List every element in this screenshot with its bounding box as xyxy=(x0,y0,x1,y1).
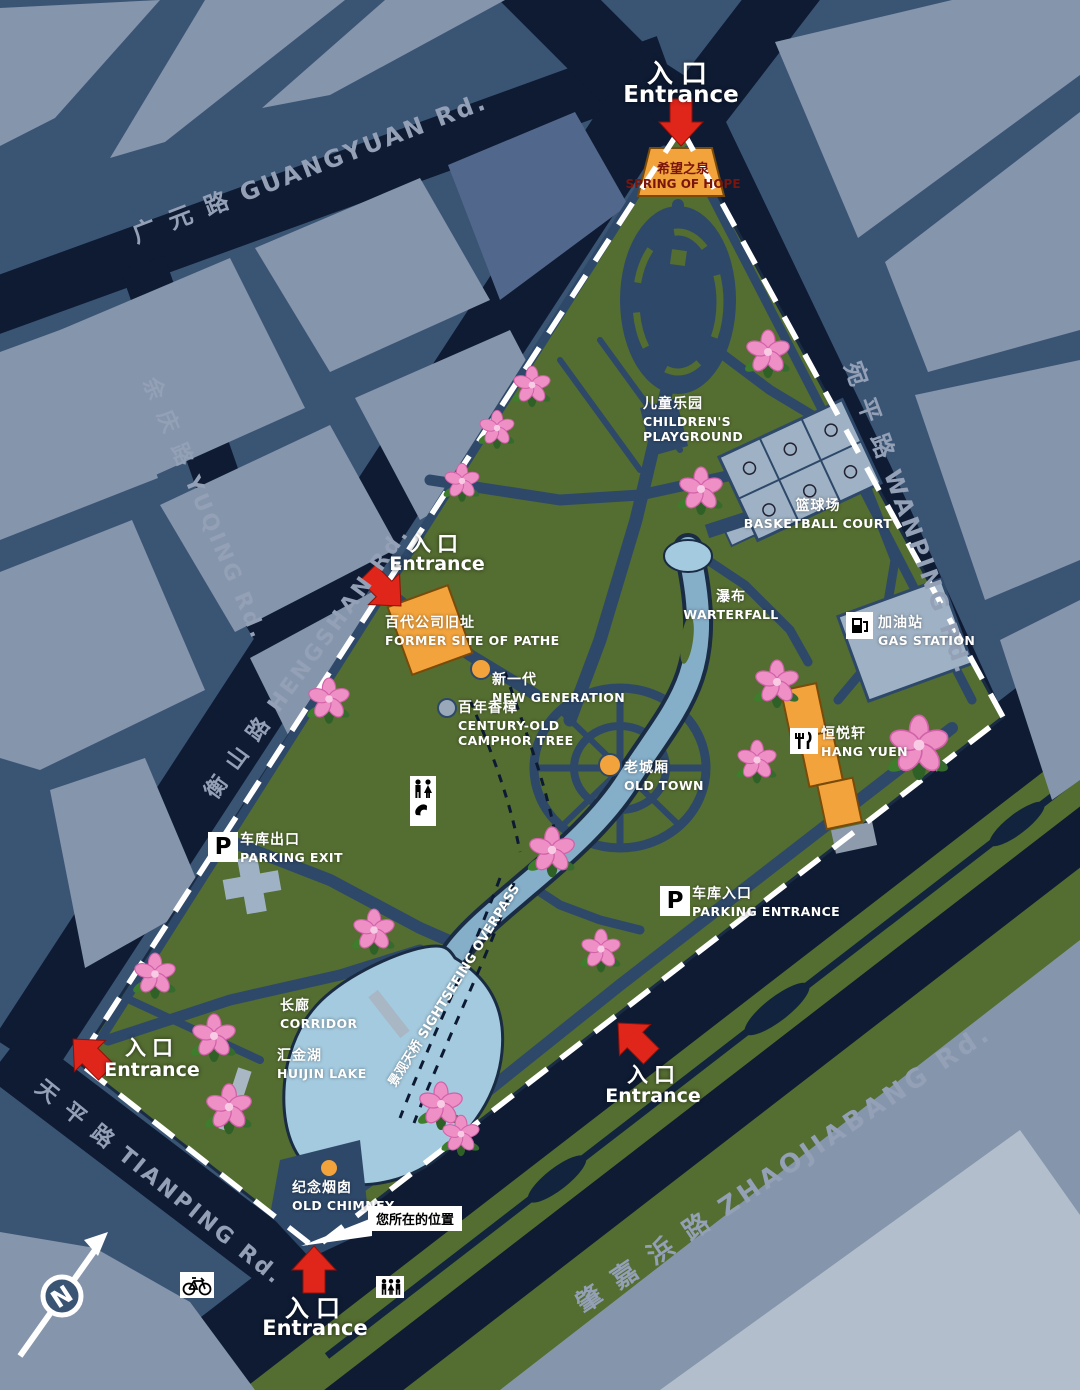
entrance-west-zh: 入口 xyxy=(125,1032,179,1062)
poi-parking-exit: 车库出口 PARKING EXIT xyxy=(240,832,343,865)
parking-entrance-icon: P xyxy=(660,886,690,916)
poi-camphor: 百年香樟 CENTURY-OLD CAMPHOR TREE xyxy=(458,700,574,749)
poi-parking-entrance: 车库入口 PARKING ENTRANCE xyxy=(692,886,840,919)
poi-corridor: 长廊 CORRIDOR xyxy=(280,998,358,1031)
gas-pump-icon xyxy=(846,612,873,639)
poi-lake: 汇金湖 HUIJIN LAKE xyxy=(277,1048,367,1081)
poi-gas-station: 加油站 GAS STATION xyxy=(878,615,975,648)
restroom-phone-icon xyxy=(410,776,436,826)
poi-hangyue: 恒悦轩 HANG YUEN xyxy=(821,726,908,759)
entrance-zhaojiabang-en: Entrance xyxy=(605,1085,700,1107)
entrance-hengshan-en: Entrance xyxy=(389,553,484,575)
poi-waterfall: 瀑布 WARTERFALL xyxy=(683,589,778,622)
entrance-top-en: Entrance xyxy=(623,82,739,108)
poi-playground: 儿童乐园 CHILDREN'S PLAYGROUND xyxy=(643,396,743,445)
parking-exit-icon: P xyxy=(208,832,238,862)
poi-spring: 希望之泉 SPRING OF HOPE xyxy=(625,158,740,191)
entry-plaza xyxy=(620,206,736,394)
poi-pathe: 百代公司旧址 FORMER SITE OF PATHE xyxy=(385,615,560,648)
park-map: 广 元 路 GUANGYUAN Rd. 余 庆 路 YUQING Rd. 衡 山… xyxy=(0,0,1080,1390)
restaurant-icon xyxy=(790,728,818,754)
poi-old-town: 老城厢 OLD TOWN xyxy=(624,760,704,793)
bicycle-icon xyxy=(180,1272,214,1298)
poi-basketball: 篮球场 BASKETBALL COURT xyxy=(744,498,892,531)
entrance-south-en: Entrance xyxy=(262,1316,368,1340)
restroom-icon xyxy=(376,1276,404,1298)
entrance-west-en: Entrance xyxy=(104,1059,199,1081)
you-are-here-label: 您所在的位置 xyxy=(368,1206,462,1231)
